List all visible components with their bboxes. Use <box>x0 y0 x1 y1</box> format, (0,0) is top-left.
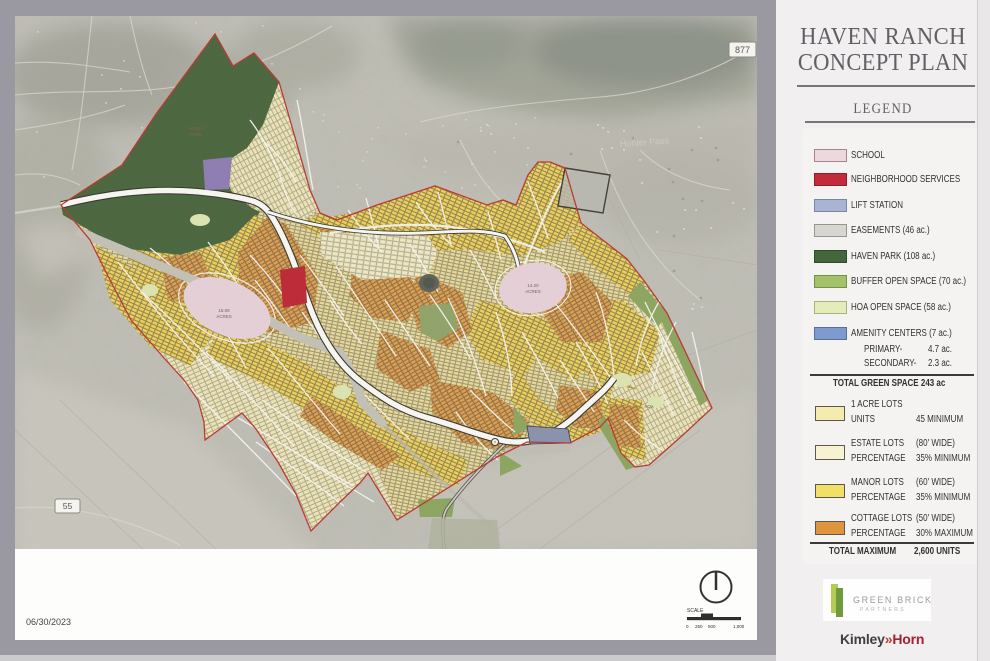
svg-text:55: 55 <box>63 501 73 511</box>
svg-text:1,000: 1,000 <box>733 624 745 629</box>
svg-text:877: 877 <box>735 45 750 55</box>
svg-text:250: 250 <box>695 624 703 629</box>
svg-text:500: 500 <box>708 624 716 629</box>
svg-text:06/30/2023: 06/30/2023 <box>26 617 71 627</box>
svg-text:SCALE: SCALE <box>687 608 704 614</box>
